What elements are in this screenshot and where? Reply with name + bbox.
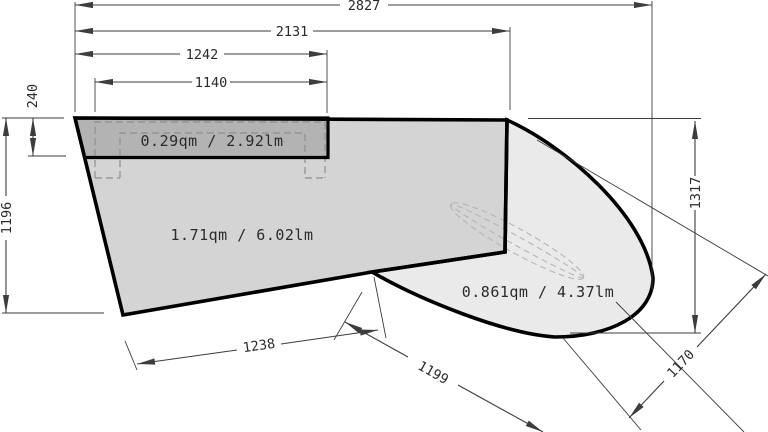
dim-label-recess-outer: 1242: [186, 47, 219, 63]
ext-line: [125, 341, 137, 370]
area-label-recess: 0.29qm / 2.92lm: [141, 132, 284, 150]
dim-label-recess-depth: 240: [25, 84, 41, 108]
dim-label-diagonal-lower: 1199: [415, 358, 451, 388]
ext-line: [563, 338, 641, 430]
dim-diagonal-lower-line: [458, 385, 543, 432]
area-label-curved: 0.861qm / 4.37lm: [462, 283, 615, 301]
dim-label-depth-right: 1317: [688, 177, 704, 210]
dim-label-recess-inner: 1140: [195, 75, 228, 91]
dim-label-width-to-seam: 2131: [276, 24, 309, 40]
dim-diagonal-right-line: [629, 381, 664, 418]
dim-bottom-edge-line: [137, 350, 237, 364]
cad-drawing: 2827 2131 1242 1140 240 1196 1317 1238 1…: [0, 0, 768, 432]
area-label-main: 1.71qm / 6.02lm: [171, 226, 314, 244]
dim-diagonal-lower-line: [345, 322, 408, 357]
dim-label-depth-left: 1196: [0, 202, 15, 235]
dim-label-diagonal-right: 1170: [664, 347, 698, 382]
ext-line: [374, 277, 386, 338]
dim-label-overall-width: 2827: [348, 0, 381, 14]
technical-drawing-canvas: 2827 2131 1242 1140 240 1196 1317 1238 1…: [0, 0, 768, 432]
dim-diagonal-right-line: [697, 274, 766, 347]
dim-label-bottom-edge: 1238: [242, 336, 276, 356]
